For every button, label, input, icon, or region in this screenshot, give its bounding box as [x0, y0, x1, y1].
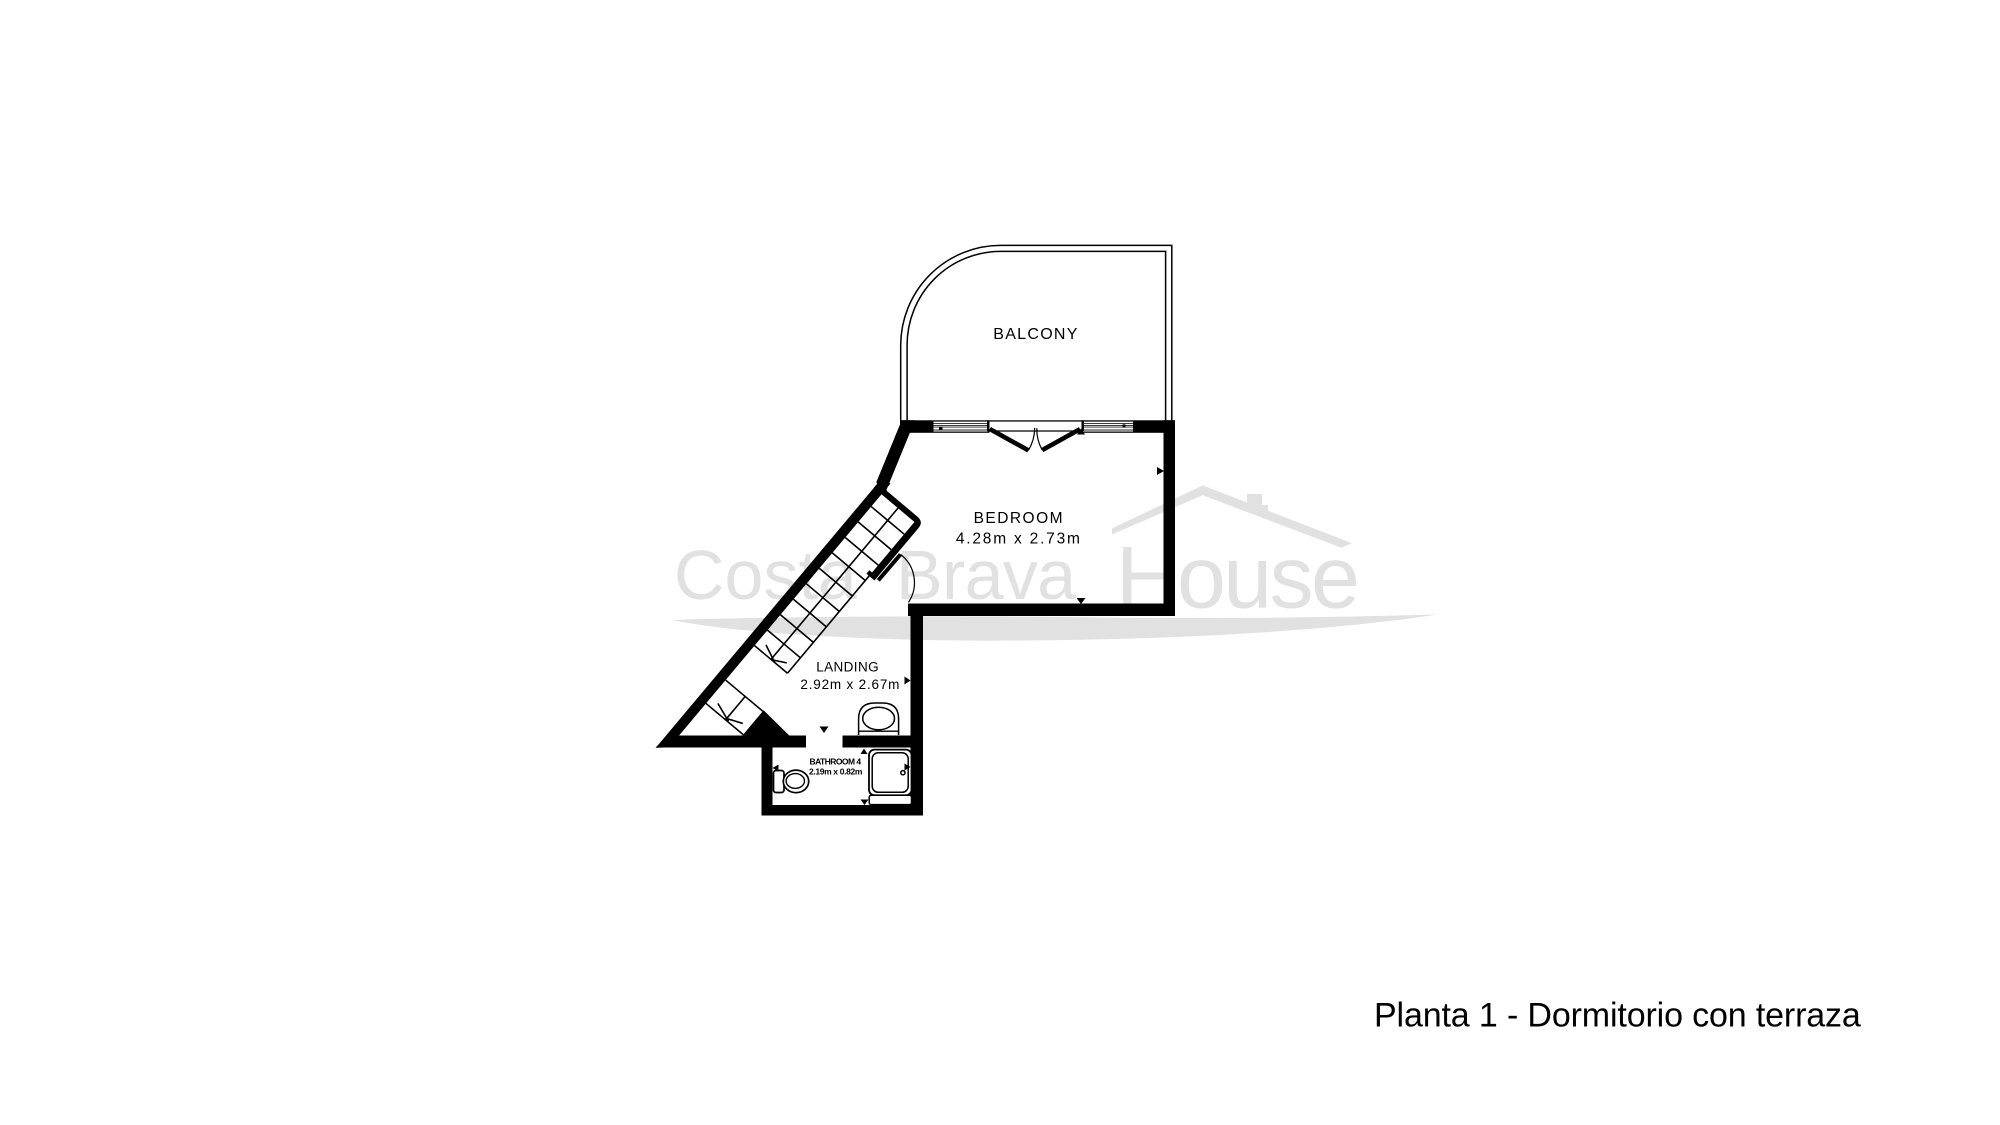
svg-text:Brava: Brava	[896, 536, 1076, 614]
svg-text:2.19m x 0.82m: 2.19m x 0.82m	[809, 766, 863, 776]
svg-text:Planta 1 - Dormitorio con terr: Planta 1 - Dormitorio con terraza	[1374, 997, 1861, 1035]
svg-text:4.28m x 2.73m: 4.28m x 2.73m	[956, 531, 1082, 548]
svg-text:BATHROOM 4: BATHROOM 4	[809, 756, 861, 766]
svg-text:2.92m x 2.67m: 2.92m x 2.67m	[800, 677, 900, 692]
svg-text:BEDROOM: BEDROOM	[974, 510, 1064, 527]
svg-text:LANDING: LANDING	[816, 660, 879, 675]
svg-text:BALCONY: BALCONY	[993, 326, 1078, 343]
